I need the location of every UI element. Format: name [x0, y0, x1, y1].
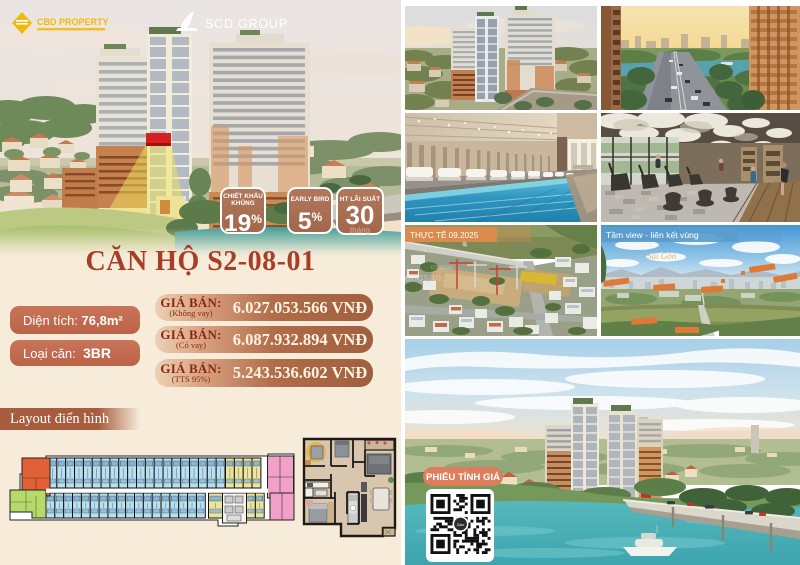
svg-text:Sài Gòn: Sài Gòn	[647, 251, 677, 261]
svg-text:PHIẾU TÍNH GIÁ: PHIẾU TÍNH GIÁ	[426, 471, 500, 483]
svg-text:ongsan: ongsan	[405, 272, 441, 284]
svg-text:congsan: congsan	[431, 265, 454, 271]
svg-text:Tầm view - liên kết vùng: Tầm view - liên kết vùng	[606, 230, 699, 240]
svg-text:CBD PROPERTY: CBD PROPERTY	[37, 17, 109, 27]
svg-text:SCD GROUP: SCD GROUP	[205, 17, 288, 31]
svg-text:THỰC TẾ 09.2025: THỰC TẾ 09.2025	[410, 230, 479, 240]
svg-text:Zalo: Zalo	[457, 523, 464, 527]
